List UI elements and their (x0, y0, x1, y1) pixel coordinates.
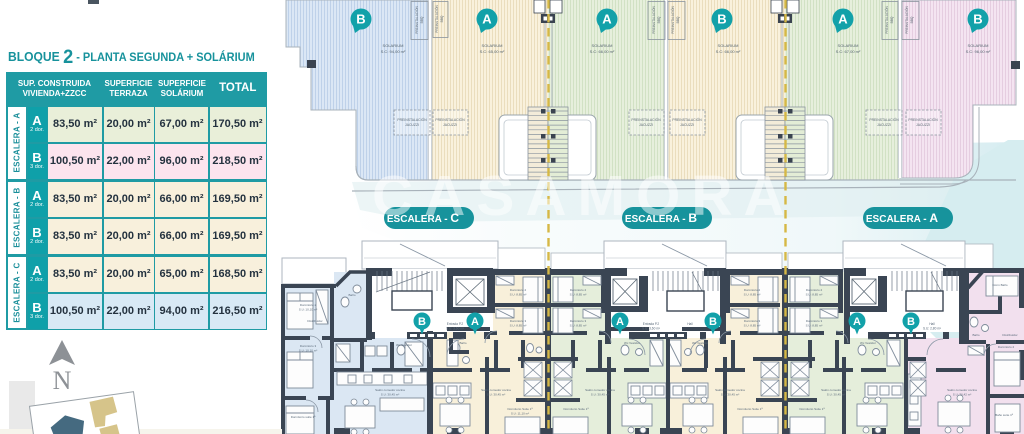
svg-text:Dormitorio 2: Dormitorio 2 (998, 345, 1015, 349)
svg-text:Dormitorio Suite 1ª: Dormitorio Suite 1ª (799, 407, 825, 411)
svg-text:S.U: 8,85 m²: S.U: 8,85 m² (570, 293, 587, 297)
svg-text:SOLARIUM: SOLARIUM (718, 43, 739, 48)
svg-text:Salón comedor cocina: Salón comedor cocina (821, 388, 851, 392)
svg-text:Salón comedor cocina: Salón comedor cocina (585, 388, 615, 392)
svg-text:BBQ: BBQ (910, 16, 914, 23)
svg-text:S.C: 67,00 m²: S.C: 67,00 m² (836, 49, 861, 54)
svg-text:S.U: 36,42 m²: S.U: 36,42 m² (953, 393, 972, 397)
svg-text:SOLARIUM: SOLARIUM (482, 43, 503, 48)
svg-text:Salón comedor cocina: Salón comedor cocina (375, 388, 405, 392)
svg-text:S.U: 8,85 m²: S.U: 8,85 m² (570, 324, 587, 328)
svg-text:Dormitorio 3: Dormitorio 3 (806, 319, 823, 323)
svg-text:B: B (418, 316, 426, 328)
svg-text:B: B (356, 12, 365, 27)
svg-text:S.C: 94,00 m²: S.C: 94,00 m² (381, 49, 406, 54)
svg-text:JACUZZI: JACUZZI (680, 123, 694, 127)
svg-text:Baño: Baño (348, 293, 355, 297)
svg-text:BBQ: BBQ (890, 16, 894, 23)
svg-text:PREINSTALACIÓN: PREINSTALACIÓN (869, 117, 899, 122)
svg-text:Salón comedor cocina: Salón comedor cocina (481, 388, 511, 392)
svg-text:Hall: Hall (929, 322, 935, 326)
svg-text:Dorm Baño: Dorm Baño (992, 283, 1008, 287)
svg-text:B: B (973, 12, 982, 27)
svg-text:Salón comedor cocina: Salón comedor cocina (947, 388, 977, 392)
svg-text:SOLARIUM: SOLARIUM (968, 43, 989, 48)
svg-text:S.U: 2,80 m²: S.U: 2,80 m² (923, 327, 941, 331)
svg-text:Dormitorio 3: Dormitorio 3 (570, 319, 587, 323)
svg-text:CASAMORA: CASAMORA (372, 164, 796, 228)
svg-text:BBQ: BBQ (440, 15, 444, 22)
svg-text:PREINSTALACIÓN: PREINSTALACIÓN (904, 6, 909, 34)
svg-text:PREINSTALACIÓN: PREINSTALACIÓN (631, 117, 661, 122)
svg-text:Baño: Baño (459, 341, 466, 345)
svg-text:A: A (602, 12, 612, 27)
svg-text:Dormitorio 3: Dormitorio 3 (744, 319, 761, 323)
svg-text:S.U: 8,85 m²: S.U: 8,85 m² (510, 293, 527, 297)
svg-text:A: A (853, 316, 861, 328)
svg-text:S.U: 8,85 m²: S.U: 8,85 m² (744, 324, 761, 328)
svg-text:S.U: 8,85 m²: S.U: 8,85 m² (806, 324, 823, 328)
svg-text:N: N (53, 366, 72, 395)
svg-text:Entrada P.2: Entrada P.2 (447, 322, 464, 326)
svg-text:Wc Vestidor: Wc Vestidor (624, 341, 640, 345)
svg-text:Dormitorio 2: Dormitorio 2 (510, 288, 527, 292)
svg-text:S.U: 30,45 m²: S.U: 30,45 m² (827, 393, 846, 397)
svg-text:A: A (471, 316, 479, 328)
svg-text:S.U: 8,85 m²: S.U: 8,85 m² (510, 324, 527, 328)
svg-text:BBQ: BBQ (420, 16, 424, 23)
svg-text:S.U: 30,45 m²: S.U: 30,45 m² (591, 393, 610, 397)
svg-text:Dormitorio 2: Dormitorio 2 (744, 288, 761, 292)
svg-text:B: B (709, 316, 717, 328)
svg-text:ESCALERA - A: ESCALERA - A (866, 211, 939, 225)
svg-text:JACUZZI: JACUZZI (916, 123, 930, 127)
svg-text:S.C: 96,00 m²: S.C: 96,00 m² (966, 49, 991, 54)
svg-text:S.C: 66,00 m²: S.C: 66,00 m² (716, 49, 741, 54)
svg-text:Dormitorio Suite 1ª: Dormitorio Suite 1ª (507, 407, 533, 411)
svg-text:Wc Vestidor: Wc Vestidor (396, 343, 412, 347)
svg-text:Dormitorio Suite 1ª: Dormitorio Suite 1ª (563, 407, 589, 411)
svg-text:S.U: 30,45 m²: S.U: 30,45 m² (381, 393, 400, 397)
svg-text:PREINSTALACIÓN: PREINSTALACIÓN (908, 117, 938, 122)
svg-text:S.C: 65,00 m²: S.C: 65,00 m² (480, 49, 505, 54)
svg-text:S.U: 30,45 m²: S.U: 30,45 m² (721, 393, 740, 397)
svg-text:PREINSTALACIÓN: PREINSTALACIÓN (434, 5, 439, 33)
svg-text:JACUZZI: JACUZZI (443, 123, 457, 127)
svg-text:JACUZZI: JACUZZI (405, 123, 419, 127)
svg-text:S.U: 8,85 m²: S.U: 8,85 m² (744, 293, 761, 297)
svg-text:S.U: 3,60 m²: S.U: 3,60 m² (642, 327, 660, 331)
svg-text:S.U: 3,60 m²: S.U: 3,60 m² (446, 327, 464, 331)
svg-text:Dormitorio 2: Dormitorio 2 (570, 288, 587, 292)
svg-text:BBQ: BBQ (657, 16, 661, 23)
svg-text:SOLARIUM: SOLARIUM (838, 43, 859, 48)
svg-text:Dormitorio 3: Dormitorio 3 (300, 344, 317, 348)
svg-text:B: B (717, 12, 726, 27)
svg-text:A: A (616, 316, 624, 328)
svg-text:Dormitorio Suite 1ª: Dormitorio Suite 1ª (737, 407, 763, 411)
svg-text:PREINSTALACIÓN: PREINSTALACIÓN (651, 6, 656, 34)
svg-text:Dormitorio 2: Dormitorio 2 (806, 288, 823, 292)
svg-text:Baño suite 1ª: Baño suite 1ª (995, 413, 1014, 417)
svg-text:Baño: Baño (972, 333, 979, 337)
svg-text:Wc Vestidor: Wc Vestidor (860, 341, 876, 345)
svg-text:PREINSTALACIÓN: PREINSTALACIÓN (414, 6, 419, 34)
svg-text:Dormitorio suite 1ª: Dormitorio suite 1ª (291, 415, 317, 419)
svg-text:PREINSTALACIÓN: PREINSTALACIÓN (435, 117, 465, 122)
svg-text:PREINSTALACIÓN: PREINSTALACIÓN (884, 6, 889, 34)
svg-text:PREINSTALACIÓN: PREINSTALACIÓN (670, 6, 675, 34)
svg-text:JACUZZI: JACUZZI (877, 123, 891, 127)
svg-text:PREINSTALACIÓN: PREINSTALACIÓN (397, 117, 427, 122)
svg-text:S.U: 8,85 m²: S.U: 8,85 m² (806, 293, 823, 297)
svg-text:Distribuidor: Distribuidor (1002, 333, 1017, 337)
svg-text:A: A (482, 12, 492, 27)
svg-text:S.U: 30,45 m²: S.U: 30,45 m² (487, 393, 506, 397)
svg-text:Distribuidor: Distribuidor (307, 319, 322, 323)
svg-text:Hall: Hall (687, 322, 693, 326)
svg-text:B: B (907, 316, 915, 328)
svg-text:S.U: 11,10 m²: S.U: 11,10 m² (511, 412, 529, 416)
svg-text:S.U: 10,10 m²: S.U: 10,10 m² (299, 349, 318, 353)
svg-text:Salón comedor cocina: Salón comedor cocina (715, 388, 745, 392)
svg-text:JACUZZI: JACUZZI (639, 123, 653, 127)
svg-text:Dormitorio 3: Dormitorio 3 (510, 319, 527, 323)
svg-text:S.C: 66,00 m²: S.C: 66,00 m² (590, 49, 615, 54)
svg-text:Wc Vestidor: Wc Vestidor (692, 341, 708, 345)
svg-text:A: A (838, 12, 848, 27)
svg-text:Dormitorio 2: Dormitorio 2 (300, 303, 317, 307)
svg-text:PREINSTALACIÓN: PREINSTALACIÓN (672, 117, 702, 122)
svg-text:Entrada P.2: Entrada P.2 (643, 322, 660, 326)
svg-text:SOLARIUM: SOLARIUM (592, 43, 613, 48)
svg-text:BBQ: BBQ (676, 16, 680, 23)
svg-text:SOLARIUM: SOLARIUM (383, 43, 404, 48)
svg-text:S.U: 10,10 m²: S.U: 10,10 m² (299, 308, 318, 312)
